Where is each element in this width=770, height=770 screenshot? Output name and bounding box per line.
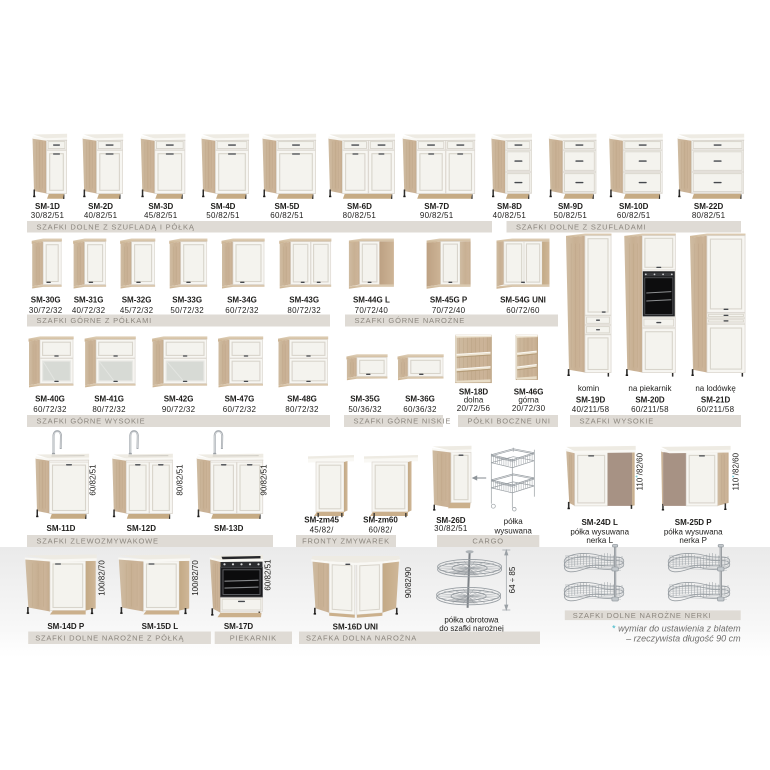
svg-text:SM-35G: SM-35G [350, 395, 380, 404]
svg-text:– rzeczywista długość 90 cm: – rzeczywista długość 90 cm [625, 633, 741, 643]
svg-text:CARGO: CARGO [472, 537, 504, 546]
svg-text:SZAFKI DOLNE NAROŻNE Z PÓŁKĄ: SZAFKI DOLNE NAROŻNE Z PÓŁKĄ [35, 634, 184, 643]
svg-text:SZAFKI GÓRNE NAROŻNE: SZAFKI GÓRNE NAROŻNE [355, 316, 466, 325]
svg-text:SM-10D: SM-10D [619, 202, 649, 211]
svg-text:SM-19D: SM-19D [576, 396, 606, 405]
svg-text:80/82/51: 80/82/51 [692, 211, 726, 220]
svg-text:SM-41G: SM-41G [94, 395, 124, 404]
svg-text:60/36/32: 60/36/32 [403, 405, 437, 414]
svg-text:110*/82/60: 110*/82/60 [731, 452, 740, 490]
svg-text:SZAFKI GÓRNE NISKIE: SZAFKI GÓRNE NISKIE [354, 417, 452, 426]
svg-text:50/82/51: 50/82/51 [206, 211, 240, 220]
svg-text:40/72/32: 40/72/32 [72, 306, 106, 315]
svg-text:SZAFKI DOLNE Z SZUFLADĄ I PÓŁK: SZAFKI DOLNE Z SZUFLADĄ I PÓŁKĄ [37, 222, 195, 231]
svg-text:nerka L: nerka L [586, 536, 613, 545]
svg-text:SM-54G UNI: SM-54G UNI [500, 296, 546, 305]
svg-text:45/72/32: 45/72/32 [120, 306, 154, 315]
svg-text:80/72/32: 80/72/32 [287, 306, 321, 315]
svg-text:na piekarnik: na piekarnik [628, 384, 672, 393]
svg-text:SM-12D: SM-12D [127, 524, 157, 533]
svg-text:półka: półka [504, 517, 524, 526]
svg-text:100/82/70: 100/82/70 [191, 560, 200, 596]
svg-text:60/72/32: 60/72/32 [223, 405, 257, 414]
svg-text:* wymiar do ustawienia z blate: * wymiar do ustawienia z blatem [612, 624, 741, 634]
svg-text:90/82/51: 90/82/51 [420, 211, 454, 220]
svg-text:80/82/51: 80/82/51 [343, 211, 377, 220]
svg-text:SM-34G: SM-34G [227, 296, 257, 305]
svg-text:PIEKARNIK: PIEKARNIK [230, 634, 277, 643]
svg-text:SZAFKI DOLNE NAROŻNE NERKI: SZAFKI DOLNE NAROŻNE NERKI [573, 611, 712, 620]
svg-text:20/72/30: 20/72/30 [512, 404, 546, 413]
svg-text:90/82/90: 90/82/90 [404, 566, 413, 598]
svg-text:SM-zm45: SM-zm45 [304, 516, 339, 525]
svg-text:90/72/32: 90/72/32 [162, 405, 196, 414]
svg-text:60/211/58: 60/211/58 [697, 405, 735, 414]
svg-text:60/82/51: 60/82/51 [270, 211, 304, 220]
svg-text:50/36/32: 50/36/32 [348, 405, 382, 414]
svg-text:80/72/32: 80/72/32 [92, 405, 126, 414]
svg-text:SM-43G: SM-43G [289, 296, 319, 305]
svg-text:SM-32G: SM-32G [122, 296, 152, 305]
svg-text:50/82/51: 50/82/51 [554, 211, 588, 220]
svg-text:60/72/32: 60/72/32 [225, 306, 259, 315]
svg-text:nerka P: nerka P [679, 536, 707, 545]
svg-text:SZAFKI ZLEWOZMYWAKOWE: SZAFKI ZLEWOZMYWAKOWE [37, 537, 159, 546]
svg-text:SM-zm60: SM-zm60 [363, 516, 398, 525]
svg-text:SM-21D: SM-21D [701, 396, 731, 405]
svg-text:110*/82/60: 110*/82/60 [635, 452, 644, 490]
svg-text:20/72/56: 20/72/56 [457, 404, 491, 413]
svg-text:40/82/51: 40/82/51 [493, 211, 527, 220]
svg-text:SM-20D: SM-20D [635, 396, 665, 405]
svg-text:SM-13D: SM-13D [214, 524, 244, 533]
svg-text:30/82/51: 30/82/51 [434, 524, 468, 533]
svg-text:64 ÷ 85: 64 ÷ 85 [508, 566, 517, 593]
svg-text:komin: komin [578, 384, 599, 393]
svg-text:SM-30G: SM-30G [31, 296, 61, 305]
svg-text:na lodówkę: na lodówkę [695, 384, 736, 393]
svg-text:SZAFKI GÓRNE WYSOKIE: SZAFKI GÓRNE WYSOKIE [37, 417, 146, 426]
svg-text:45/82/: 45/82/ [310, 525, 335, 534]
svg-text:SM-2D: SM-2D [88, 202, 113, 211]
svg-text:SM-45G P: SM-45G P [430, 296, 468, 305]
svg-text:SM-40G: SM-40G [35, 395, 65, 404]
svg-text:SM-1D: SM-1D [35, 202, 60, 211]
svg-text:SM-14D P: SM-14D P [47, 622, 85, 631]
svg-text:SM-33G: SM-33G [172, 296, 202, 305]
svg-text:SM-48G: SM-48G [287, 395, 317, 404]
svg-text:90/82/51: 90/82/51 [260, 464, 269, 496]
svg-text:40/211/58: 40/211/58 [572, 405, 610, 414]
svg-text:SM-3D: SM-3D [148, 202, 173, 211]
svg-text:45/82/51: 45/82/51 [144, 211, 178, 220]
svg-text:SZAFKI GÓRNE Z PÓŁKAMI: SZAFKI GÓRNE Z PÓŁKAMI [37, 316, 153, 325]
svg-text:60/72/60: 60/72/60 [506, 306, 540, 315]
svg-text:50/72/32: 50/72/32 [170, 306, 204, 315]
svg-text:wysuwana: wysuwana [494, 527, 533, 536]
svg-text:SM-22D: SM-22D [694, 202, 724, 211]
svg-text:30/82/51: 30/82/51 [31, 211, 65, 220]
svg-text:PÓŁKI BOCZNE UNI: PÓŁKI BOCZNE UNI [468, 417, 551, 426]
svg-text:80/72/32: 80/72/32 [285, 405, 319, 414]
svg-text:FRONTY ZMYWAREK: FRONTY ZMYWAREK [302, 537, 390, 546]
svg-text:SZAFKI WYSOKIE: SZAFKI WYSOKIE [580, 417, 655, 426]
svg-text:SM-25D P: SM-25D P [675, 518, 713, 527]
svg-text:40/82/51: 40/82/51 [84, 211, 118, 220]
svg-text:SM-31G: SM-31G [74, 296, 104, 305]
svg-text:SM-42G: SM-42G [164, 395, 194, 404]
svg-text:SM-6D: SM-6D [347, 202, 372, 211]
svg-text:60/82/51: 60/82/51 [264, 559, 273, 591]
svg-text:100/82/70: 100/82/70 [97, 560, 106, 596]
svg-text:70/72/40: 70/72/40 [355, 306, 389, 315]
svg-text:SM-17D: SM-17D [224, 622, 254, 631]
svg-text:SM-7D: SM-7D [424, 202, 449, 211]
svg-text:SM-4D: SM-4D [211, 202, 236, 211]
svg-text:SM-15D L: SM-15D L [142, 622, 179, 631]
svg-text:SM-11D: SM-11D [47, 524, 76, 533]
svg-text:60/82/: 60/82/ [368, 525, 393, 534]
svg-text:SM-8D: SM-8D [497, 202, 522, 211]
svg-text:60/82/51: 60/82/51 [617, 211, 651, 220]
svg-text:SM-44G L: SM-44G L [353, 296, 390, 305]
svg-text:SM-9D: SM-9D [558, 202, 583, 211]
svg-text:SZAFKI DOLNE Z SZUFLADAMI: SZAFKI DOLNE Z SZUFLADAMI [516, 222, 646, 231]
svg-text:SZAFKA DOLNA NAROŻNA: SZAFKA DOLNA NAROŻNA [306, 634, 417, 643]
svg-text:SM-5D: SM-5D [275, 202, 300, 211]
svg-text:60/211/58: 60/211/58 [631, 405, 669, 414]
svg-text:60/72/32: 60/72/32 [33, 405, 67, 414]
svg-text:60/82/51: 60/82/51 [89, 464, 98, 496]
svg-text:70/72/40: 70/72/40 [432, 306, 466, 315]
svg-text:do szafki narożnej: do szafki narożnej [439, 624, 504, 633]
svg-text:80/82/51: 80/82/51 [175, 464, 184, 496]
svg-text:SM-24D L: SM-24D L [581, 518, 618, 527]
svg-text:SM-36G: SM-36G [405, 395, 435, 404]
svg-text:SM-47G: SM-47G [225, 395, 255, 404]
svg-text:SM-16D UNI: SM-16D UNI [333, 623, 378, 632]
svg-text:30/72/32: 30/72/32 [29, 306, 63, 315]
